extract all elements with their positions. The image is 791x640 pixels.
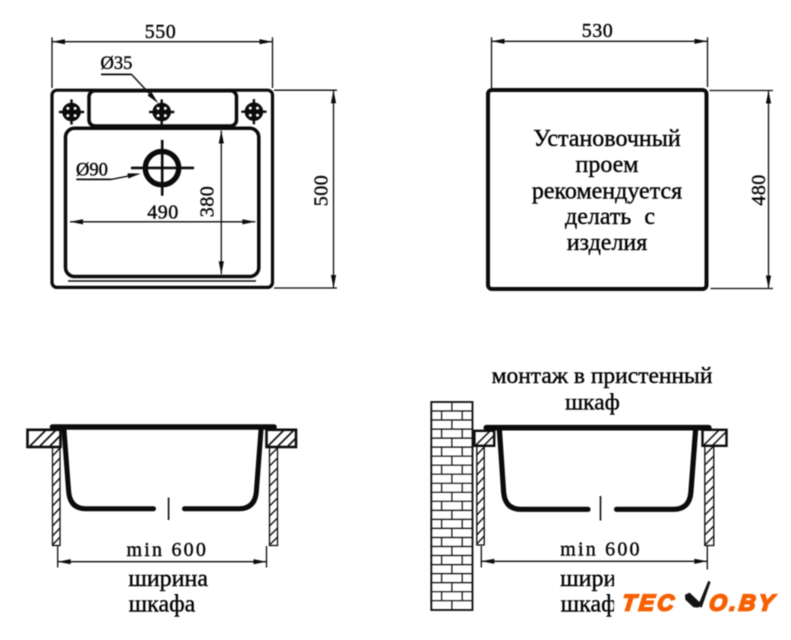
svg-text:Установочный: Установочный xyxy=(533,126,681,152)
svg-text:делать с: делать с xyxy=(565,204,655,230)
svg-text:монтаж в пристенный: монтаж в пристенный xyxy=(492,363,713,389)
svg-text:490: 490 xyxy=(147,201,179,223)
svg-text:шкаф: шкаф xyxy=(565,390,620,416)
svg-text:530: 530 xyxy=(582,20,614,42)
svg-text:O.BY: O.BY xyxy=(708,589,778,615)
svg-text:Ø35: Ø35 xyxy=(101,54,133,74)
svg-text:Ø90: Ø90 xyxy=(76,160,108,180)
svg-text:550: 550 xyxy=(145,21,177,43)
svg-text:проем: проем xyxy=(576,152,639,178)
svg-text:min 600: min 600 xyxy=(560,538,642,560)
svg-text:380: 380 xyxy=(197,186,219,218)
svg-text:500: 500 xyxy=(311,175,333,207)
svg-text:TEC: TEC xyxy=(621,589,678,615)
svg-text:шкафа: шкафа xyxy=(129,592,196,618)
svg-text:480: 480 xyxy=(748,174,770,206)
svg-text:рекомендуется: рекомендуется xyxy=(532,179,682,205)
svg-text:ширина: ширина xyxy=(128,566,208,592)
svg-text:min 600: min 600 xyxy=(127,539,209,561)
svg-text:изделия: изделия xyxy=(567,230,648,256)
